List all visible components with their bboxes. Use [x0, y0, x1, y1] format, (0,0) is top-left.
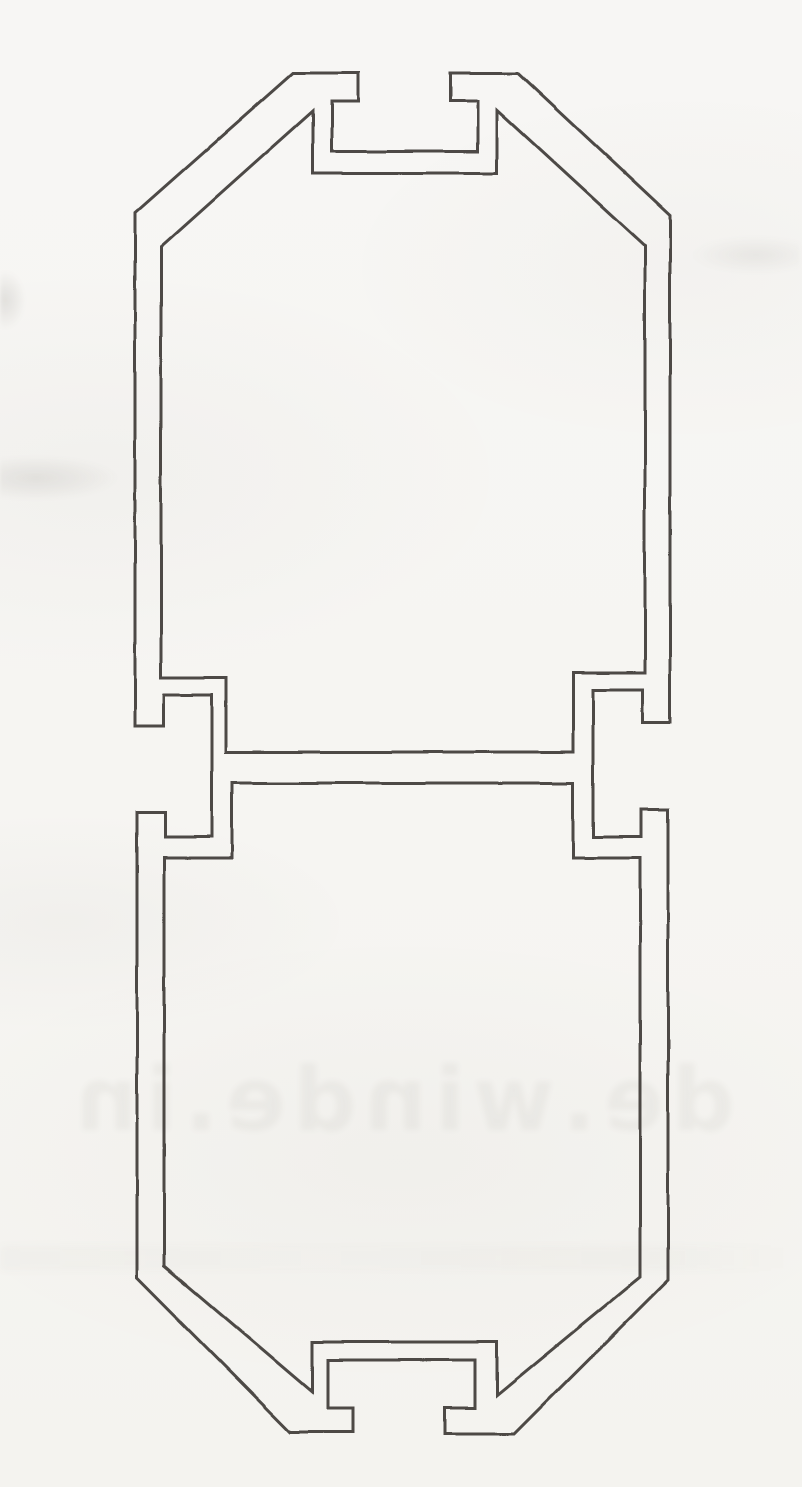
upper-chamber-cavity-contour — [161, 110, 645, 752]
profile-lines — [135, 73, 670, 1434]
lower-chamber-cavity-contour — [164, 783, 640, 1395]
profile-drawing — [0, 0, 802, 1487]
scanned-page: de.winde.in — [0, 0, 802, 1487]
